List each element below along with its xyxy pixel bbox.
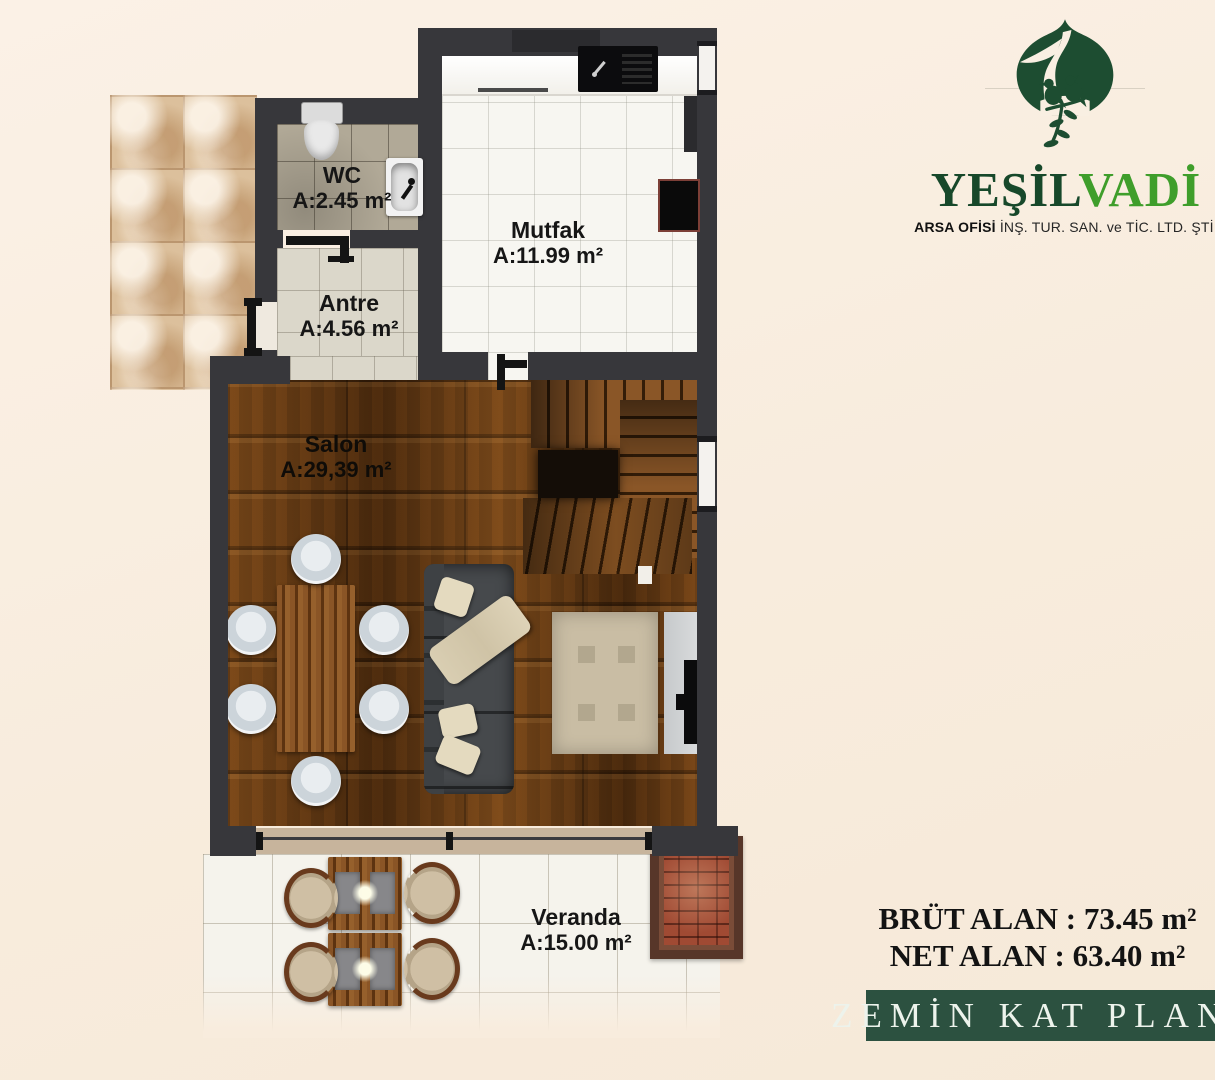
plan-title: ZEMİN KAT PLANI bbox=[831, 996, 1215, 1036]
area-rug bbox=[552, 612, 658, 754]
area-summary: BRÜT ALAN : 73.45 m² NET ALAN : 63.40 m² bbox=[860, 900, 1215, 974]
tagline-rest: İNŞ. TUR. SAN. ve TİC. LTD. ŞTİ. bbox=[996, 219, 1215, 235]
brand-tagline: ARSA OFİSİ İNŞ. TUR. SAN. ve TİC. LTD. Ş… bbox=[905, 219, 1215, 235]
brand-part-dark: YEŞİL bbox=[931, 162, 1079, 217]
salon-window bbox=[699, 440, 715, 510]
veranda-fade bbox=[203, 975, 720, 1038]
kitchen-window-frame bbox=[697, 90, 717, 95]
sliding-door-tick bbox=[446, 832, 453, 850]
dining-chair bbox=[359, 605, 409, 655]
veranda-chair bbox=[404, 938, 460, 1000]
room-area: A:15.00 m² bbox=[520, 930, 631, 956]
entrance-door-leaf bbox=[247, 304, 256, 350]
room-area: A:4.56 m² bbox=[299, 316, 398, 342]
dining-chair bbox=[291, 534, 341, 584]
staircase bbox=[523, 378, 697, 592]
rug-pattern-mark bbox=[618, 646, 635, 663]
salon-left-wall bbox=[210, 356, 228, 856]
kitchen-pilaster bbox=[684, 96, 697, 152]
brand-wordmark: YEŞİLVADİ bbox=[925, 165, 1207, 214]
entrance-door-jamb bbox=[244, 348, 262, 356]
sliding-door-tick bbox=[256, 832, 263, 850]
kitchen-window bbox=[699, 44, 715, 92]
kitchen-window-frame bbox=[697, 41, 717, 46]
room-name: Mutfak bbox=[493, 217, 603, 243]
salon-window-frame bbox=[697, 506, 717, 512]
wc-door-leaf bbox=[286, 236, 348, 245]
stairs-base-door bbox=[638, 566, 652, 584]
room-label-salon: Salon A:29,39 m² bbox=[280, 431, 391, 483]
room-area: A:11.99 m² bbox=[493, 243, 603, 269]
room-area: A:2.45 m² bbox=[292, 188, 391, 214]
veranda-chair bbox=[404, 862, 460, 924]
kitchen-door-jamb bbox=[505, 360, 527, 368]
dining-chair bbox=[226, 684, 276, 734]
room-label-antre: Antre A:4.56 m² bbox=[299, 290, 398, 342]
sliding-door-tick bbox=[645, 832, 652, 850]
dining-chair bbox=[226, 605, 276, 655]
wc-divider-wall-right bbox=[350, 230, 418, 248]
dining-table bbox=[277, 585, 355, 752]
salon-window-frame bbox=[697, 436, 717, 442]
wc-divider-wall-left bbox=[255, 230, 283, 248]
table-light-glare bbox=[350, 878, 380, 908]
rug-pattern-mark bbox=[578, 646, 595, 663]
room-name: WC bbox=[292, 162, 391, 188]
faucet-base bbox=[592, 72, 597, 77]
plan-title-banner: ZEMİN KAT PLANI bbox=[866, 990, 1215, 1041]
dining-chair bbox=[291, 756, 341, 806]
sliding-door-threshold bbox=[256, 828, 652, 854]
brut-alan-line: BRÜT ALAN : 73.45 m² bbox=[860, 900, 1215, 937]
room-label-mutfak: Mutfak A:11.99 m² bbox=[493, 217, 603, 269]
brand-part-light: VADİ bbox=[1078, 162, 1201, 217]
tagline-bold: ARSA OFİSİ bbox=[914, 219, 996, 235]
dining-chair bbox=[359, 684, 409, 734]
rug-pattern-mark bbox=[578, 704, 595, 721]
kitchen-shelf bbox=[478, 88, 548, 92]
net-alan-line: NET ALAN : 63.40 m² bbox=[860, 937, 1215, 974]
veranda-table bbox=[328, 933, 402, 1006]
valley-birds-emblem bbox=[1006, 16, 1124, 164]
kitchen-door-leaf bbox=[497, 354, 505, 390]
kitchen-bottom-wall-left bbox=[442, 352, 488, 380]
entrance-door-jamb bbox=[244, 298, 262, 306]
room-name: Antre bbox=[299, 290, 398, 316]
room-area: A:29,39 m² bbox=[280, 457, 391, 483]
kitchen-bottom-wall-right bbox=[528, 352, 717, 380]
room-label-veranda: Veranda A:15.00 m² bbox=[520, 904, 631, 956]
salon-bottom-wall-right-stub bbox=[652, 826, 738, 856]
wc-sink bbox=[386, 158, 423, 216]
stairs-bottom-flight bbox=[523, 498, 692, 574]
stairs-void bbox=[538, 450, 618, 498]
room-name: Salon bbox=[280, 431, 391, 457]
kitchen-sink-unit bbox=[578, 46, 658, 92]
room-name: Veranda bbox=[520, 904, 631, 930]
wc-faucet-dot bbox=[408, 178, 415, 185]
tv-stand bbox=[676, 694, 684, 710]
floor-plan-page: WC A:2.45 m² Antre A:4.56 m² Mutfak A:11… bbox=[0, 0, 1215, 1080]
entrance-door-gap bbox=[255, 302, 277, 350]
veranda-table bbox=[328, 857, 402, 930]
salon-bottom-wall-left-stub bbox=[210, 826, 256, 856]
room-label-wc: WC A:2.45 m² bbox=[292, 162, 391, 214]
wc-sink-basin bbox=[391, 163, 418, 211]
kitchen-appliance bbox=[658, 179, 700, 232]
veranda-chair bbox=[284, 868, 338, 928]
table-light-glare bbox=[350, 954, 380, 984]
veranda-chair bbox=[284, 942, 338, 1002]
wc-door-stop bbox=[328, 256, 354, 262]
tv-screen bbox=[684, 660, 697, 744]
rug-pattern-mark bbox=[618, 704, 635, 721]
marble-patio-floor bbox=[110, 95, 257, 390]
sliding-door-glass-line bbox=[256, 837, 652, 840]
sink-grill bbox=[622, 54, 652, 84]
